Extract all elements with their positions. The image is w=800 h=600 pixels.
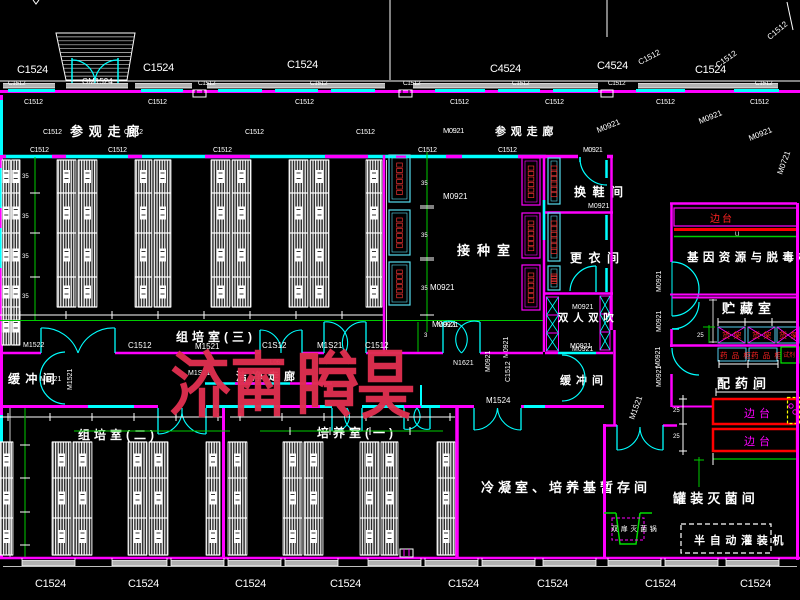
svg-text:C1524: C1524 [287,59,318,71]
svg-text:M1521: M1521 [67,368,74,390]
svg-text:C1512: C1512 [512,80,530,87]
svg-text:M0921: M0921 [655,346,662,368]
svg-text:参观走廊: 参观走廊 [495,124,558,138]
svg-text:C1512: C1512 [198,80,216,87]
svg-text:M0921: M0921 [572,304,594,311]
svg-text:更衣间: 更衣间 [570,250,626,265]
svg-text:25: 25 [697,333,704,339]
svg-text:C1512: C1512 [356,129,375,136]
svg-text:边台: 边台 [710,212,734,225]
svg-text:C1524: C1524 [537,578,568,590]
svg-text:M0921: M0921 [437,322,459,329]
svg-text:C1S12: C1S12 [262,341,287,350]
svg-text:配药间: 配药间 [717,376,771,391]
svg-text:M0921: M0921 [503,336,510,358]
svg-text:25: 25 [673,434,680,440]
svg-text:C1524: C1524 [645,578,676,590]
svg-text:C1512: C1512 [310,80,328,87]
svg-text:C1512: C1512 [124,129,143,136]
svg-text:培养室(一): 培养室(一) [317,425,397,440]
svg-text:C1524: C1524 [235,578,266,590]
svg-text:C1512: C1512 [128,341,152,350]
svg-text:35: 35 [22,174,29,180]
svg-text:贮藏室: 贮藏室 [721,301,776,316]
svg-text:C4524: C4524 [597,60,628,72]
svg-text:双人双吹: 双人双吹 [557,311,618,324]
svg-text:试剂: 试剂 [783,351,795,359]
svg-text:货架: 货架 [752,330,775,340]
svg-text:接种室: 接种室 [457,243,517,258]
svg-text:35: 35 [421,181,428,187]
svg-text:双扉灭菌锅: 双扉灭菌锅 [611,524,660,533]
svg-text:M1522: M1522 [23,342,45,349]
svg-text:基因资源与脱毒检测室: 基因资源与脱毒检测室 [686,250,800,264]
svg-text:边台: 边台 [744,434,774,448]
svg-text:C1512: C1512 [545,99,564,106]
svg-text:C1524: C1524 [17,64,48,76]
svg-text:M0921: M0921 [570,343,592,350]
svg-text:M0921: M0921 [443,192,468,201]
svg-text:C1512: C1512 [245,129,264,136]
svg-text:C1512: C1512 [418,147,437,154]
svg-text:冷凝室、培养基暂存间: 冷凝室、培养基暂存间 [481,480,651,495]
svg-text:M1524: M1524 [486,396,511,405]
svg-text:C1512: C1512 [750,99,769,106]
svg-text:药品柜: 药品柜 [720,350,755,360]
svg-text:M0921: M0921 [588,203,610,210]
svg-text:35: 35 [22,214,29,220]
svg-text:M0921: M0921 [656,270,663,292]
svg-text:C1524: C1524 [35,578,66,590]
svg-text:C1512: C1512 [656,99,675,106]
svg-text:货架: 货架 [722,330,745,340]
svg-text:C1512: C1512 [24,99,43,106]
svg-text:M1S21: M1S21 [317,341,343,350]
svg-text:C1512: C1512 [450,99,469,106]
svg-text:C1512: C1512 [608,80,626,87]
svg-text:C1512: C1512 [498,147,517,154]
svg-text:换鞋间: 换鞋间 [574,184,630,199]
svg-text:35: 35 [421,233,428,239]
svg-text:C1512: C1512 [505,361,512,382]
svg-text:C4524: C4524 [490,63,521,75]
svg-text:C1524: C1524 [128,578,159,590]
svg-text:C1512: C1512 [365,341,389,350]
svg-text:C1512: C1512 [148,99,167,106]
svg-text:C1512: C1512 [403,80,421,87]
svg-text:M0921: M0921 [430,283,455,292]
svg-text:M0921: M0921 [583,147,603,154]
svg-text:C1524: C1524 [448,578,479,590]
svg-text:半自动灌装机: 半自动灌装机 [694,533,788,547]
svg-text:N1621: N1621 [453,360,474,367]
svg-text:C1524: C1524 [330,578,361,590]
svg-text:M0921: M0921 [443,126,464,135]
svg-text:M0921: M0921 [656,365,663,387]
svg-text:C1512: C1512 [295,99,314,106]
svg-text:35: 35 [22,254,29,260]
svg-text:40: 40 [753,386,759,392]
svg-text:35: 35 [421,286,428,292]
svg-text:C1512: C1512 [8,80,26,87]
svg-text:25: 25 [673,408,680,414]
svg-text:M1521: M1521 [40,376,62,383]
svg-text:C1524: C1524 [740,578,771,590]
svg-text:M0921: M0921 [485,350,492,372]
svg-text:35: 35 [22,294,29,300]
svg-text:边台: 边台 [744,406,774,420]
svg-text:C1512: C1512 [43,129,62,136]
svg-text:M0921: M0921 [656,310,663,332]
svg-text:C1512: C1512 [213,147,232,154]
svg-text:C1512: C1512 [30,147,49,154]
svg-text:C1512: C1512 [755,80,773,87]
svg-text:组培室(二): 组培室(二) [78,427,158,442]
svg-text:C1512: C1512 [108,147,127,154]
svg-text:罐装灭菌间: 罐装灭菌间 [672,491,759,506]
svg-text:C1524: C1524 [143,62,174,74]
